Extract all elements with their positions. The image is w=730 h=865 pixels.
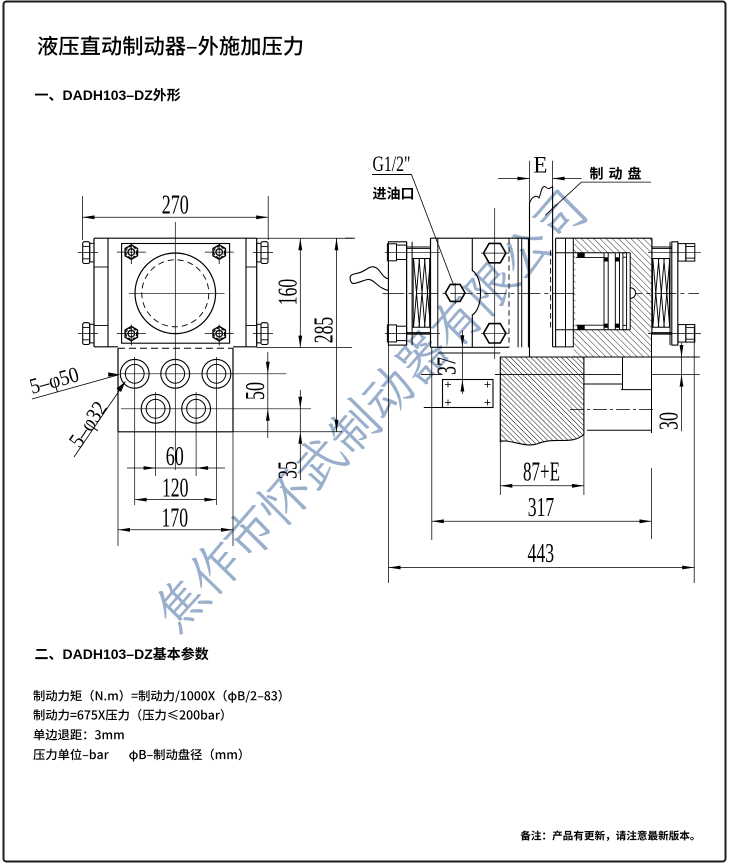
svg-text:60: 60: [166, 440, 184, 471]
svg-text:170: 170: [162, 502, 189, 533]
svg-text:50: 50: [239, 382, 270, 400]
svg-text:E: E: [533, 153, 547, 178]
svg-text:270: 270: [162, 189, 189, 220]
svg-text:DADH103–DZ: DADH103–DZ: [63, 87, 154, 103]
svg-text:160: 160: [271, 279, 302, 306]
svg-text:5–φ32: 5–φ32: [63, 396, 112, 451]
svg-text:120: 120: [162, 472, 189, 503]
svg-text:DADH103–DZ: DADH103–DZ: [63, 646, 154, 662]
svg-text:35: 35: [271, 461, 302, 479]
svg-text:30: 30: [653, 412, 684, 430]
svg-text:317: 317: [528, 491, 555, 522]
svg-text:G1/2": G1/2": [373, 151, 411, 176]
svg-text:37: 37: [431, 357, 462, 375]
svg-text:285: 285: [308, 317, 339, 344]
svg-text:443: 443: [528, 537, 555, 568]
svg-text:87+E: 87+E: [523, 456, 560, 487]
